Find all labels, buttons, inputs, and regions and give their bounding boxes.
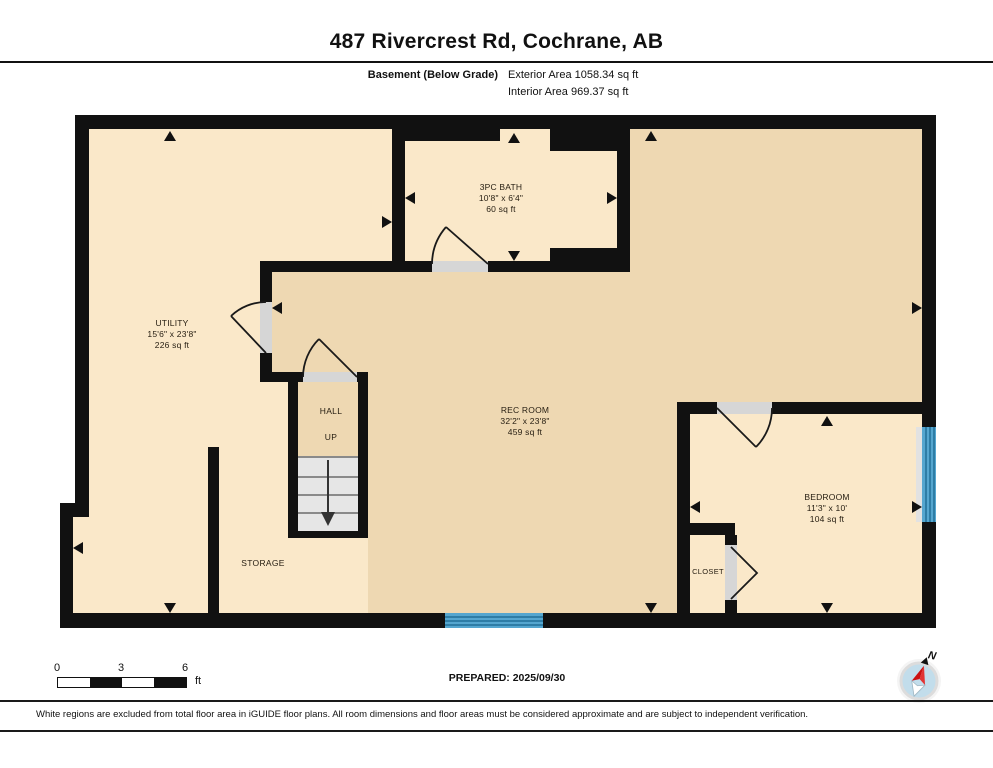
scale-tick: 0 (54, 662, 60, 674)
wall (208, 447, 219, 613)
door-opening (303, 372, 357, 382)
room-area: 60 sq ft (479, 204, 523, 215)
wall (288, 382, 298, 538)
window-line (445, 616, 543, 618)
room-label-storage: STORAGE (241, 558, 285, 568)
room-dims: 11'3" x 10' (804, 503, 849, 514)
dimension-arrow (912, 501, 922, 513)
room-label-utility: UTILITY 15'6" x 23'8" 226 sq ft (147, 318, 196, 351)
door-opening (717, 402, 772, 414)
room-label-hall: HALL (320, 406, 342, 416)
room-area: 226 sq ft (147, 340, 196, 351)
scale-bar-segments (57, 677, 187, 688)
dimension-arrow (73, 542, 83, 554)
wall (392, 129, 405, 272)
wall (677, 402, 717, 414)
scale-bar: 0 3 6 ft (57, 662, 257, 692)
dimension-arrow (821, 603, 833, 613)
room-label-closet: CLOSET (692, 567, 724, 576)
staircase (298, 456, 358, 531)
wall (550, 129, 630, 151)
dimension-arrow (821, 416, 833, 426)
window-line (929, 427, 931, 522)
stair-tread (298, 476, 358, 478)
wall (922, 129, 936, 628)
room-name: REC ROOM (500, 405, 549, 416)
room-name: UTILITY (147, 318, 196, 329)
room-label-rec: REC ROOM 32'2" x 23'8" 459 sq ft (500, 405, 549, 438)
room-area: 104 sq ft (804, 514, 849, 525)
stair-tread (298, 494, 358, 496)
dimension-arrow (645, 131, 657, 141)
room-name: 3PC BATH (479, 182, 523, 193)
wall (392, 261, 432, 272)
window-line (445, 620, 543, 622)
wall (60, 503, 73, 628)
room-dims: 32'2" x 23'8" (500, 416, 549, 427)
footer-divider-top (0, 700, 993, 702)
room-dims: 10'8" x 6'4" (479, 193, 523, 204)
wall (260, 372, 303, 382)
prepared-date: PREPARED: 2025/09/30 (367, 672, 647, 684)
wall (677, 414, 690, 613)
wall (550, 248, 630, 272)
disclaimer-text: White regions are excluded from total fl… (36, 709, 966, 720)
room-label-bath: 3PC BATH 10'8" x 6'4" 60 sq ft (479, 182, 523, 215)
wall (260, 261, 272, 302)
room-name: BEDROOM (804, 492, 849, 503)
window-line (933, 427, 935, 522)
dimension-arrow (405, 192, 415, 204)
wall (75, 115, 936, 129)
scale-tick: 3 (118, 662, 124, 674)
scale-tick: 6 (182, 662, 188, 674)
wall (725, 600, 737, 613)
wall (488, 261, 550, 272)
footer-divider-bottom (0, 730, 993, 732)
wall (725, 535, 737, 545)
wall (358, 372, 368, 538)
wall (677, 523, 735, 535)
dimension-arrow (382, 216, 392, 228)
wall (260, 261, 392, 272)
dimension-arrow (645, 603, 657, 613)
dimension-arrow (164, 131, 176, 141)
floor-plan: UTILITY 15'6" x 23'8" 226 sq ft 3PC BATH… (0, 0, 993, 768)
door-opening (432, 261, 488, 272)
stair-tread (298, 512, 358, 514)
wall (75, 115, 89, 517)
room-label-up: UP (325, 432, 337, 442)
door-opening (260, 302, 272, 353)
window-line (925, 427, 927, 522)
room-dims: 15'6" x 23'8" (147, 329, 196, 340)
wall (392, 129, 500, 141)
door-opening (725, 545, 737, 600)
wall (772, 402, 922, 414)
window-line (445, 624, 543, 626)
dimension-arrow (508, 251, 520, 261)
compass-icon (892, 652, 946, 706)
scale-unit: ft (195, 675, 201, 687)
room-area: 459 sq ft (500, 427, 549, 438)
dimension-arrow (164, 603, 176, 613)
dimension-arrow (690, 501, 700, 513)
dimension-arrow (607, 192, 617, 204)
dimension-arrow (508, 133, 520, 143)
room-label-bedroom: BEDROOM 11'3" x 10' 104 sq ft (804, 492, 849, 525)
dimension-arrow (272, 302, 282, 314)
dimension-arrow (912, 302, 922, 314)
